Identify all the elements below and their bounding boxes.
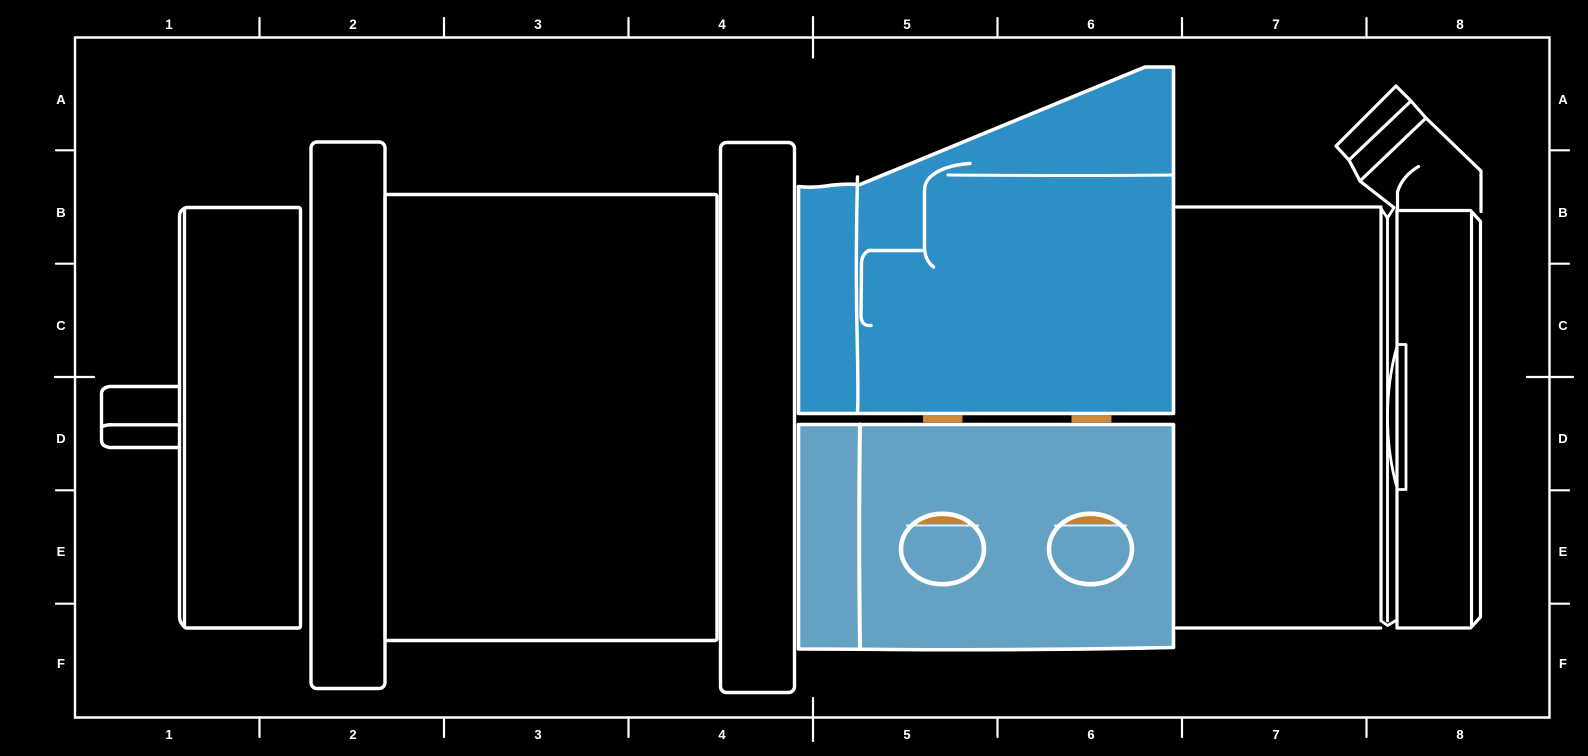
svg-text:F: F xyxy=(1559,656,1567,671)
svg-text:8: 8 xyxy=(1456,727,1463,742)
svg-text:5: 5 xyxy=(903,727,910,742)
svg-text:2: 2 xyxy=(349,727,356,742)
svg-text:A: A xyxy=(1558,92,1568,107)
svg-text:C: C xyxy=(56,318,66,333)
svg-text:1: 1 xyxy=(165,17,173,32)
svg-text:A: A xyxy=(56,92,66,107)
svg-text:B: B xyxy=(56,205,65,220)
svg-text:5: 5 xyxy=(903,17,911,32)
svg-text:2: 2 xyxy=(349,17,357,32)
svg-text:D: D xyxy=(56,431,65,446)
svg-text:3: 3 xyxy=(534,17,542,32)
svg-text:8: 8 xyxy=(1456,17,1464,32)
svg-text:1: 1 xyxy=(165,727,172,742)
svg-text:E: E xyxy=(57,544,66,559)
svg-text:E: E xyxy=(1559,544,1568,559)
svg-text:3: 3 xyxy=(534,727,541,742)
svg-text:6: 6 xyxy=(1087,727,1094,742)
svg-text:D: D xyxy=(1558,431,1567,446)
svg-text:F: F xyxy=(57,656,65,671)
svg-text:B: B xyxy=(1558,205,1567,220)
svg-text:7: 7 xyxy=(1272,727,1279,742)
svg-text:6: 6 xyxy=(1087,17,1095,32)
svg-text:4: 4 xyxy=(718,17,726,32)
svg-text:7: 7 xyxy=(1272,17,1280,32)
svg-text:4: 4 xyxy=(718,727,726,742)
svg-text:C: C xyxy=(1558,318,1568,333)
